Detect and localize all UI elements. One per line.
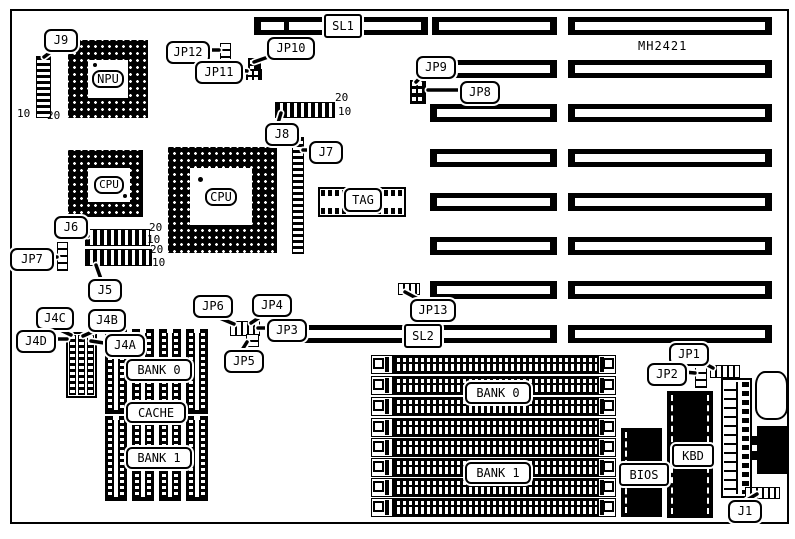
callout-jp2-label: JP2 xyxy=(656,368,678,381)
callout-jp7-label: JP7 xyxy=(21,253,43,266)
callout-j4d-label: J4D xyxy=(25,335,47,348)
callout-j5-label: J5 xyxy=(98,284,112,297)
callout-jp11-label: JP11 xyxy=(205,66,234,79)
callout-j4b-label: J4B xyxy=(96,314,118,327)
callout-jp10-label: JP10 xyxy=(277,42,306,55)
callout-j4a: J4A xyxy=(105,334,145,357)
callout-jp8: JP8 xyxy=(460,81,500,104)
callout-j1: J1 xyxy=(728,500,762,523)
callout-jp4: JP4 xyxy=(252,294,292,317)
callout-j1-label: J1 xyxy=(738,505,752,518)
callout-j6-label: J6 xyxy=(64,221,78,234)
callout-jp11: JP11 xyxy=(195,61,243,84)
callout-j4c: J4C xyxy=(36,307,74,330)
callout-j4c-label: J4C xyxy=(44,312,66,325)
callout-j8: J8 xyxy=(265,123,299,146)
callout-j4b: J4B xyxy=(88,309,126,332)
callout-j7: J7 xyxy=(309,141,343,164)
callout-jp9-label: JP9 xyxy=(425,61,447,74)
callout-j6: J6 xyxy=(54,216,88,239)
pointer-j4a xyxy=(91,341,104,343)
callout-jp4-label: JP4 xyxy=(261,299,283,312)
callout-jp7: JP7 xyxy=(10,248,54,271)
callout-jp6-label: JP6 xyxy=(202,300,224,313)
callout-j4d: J4D xyxy=(16,330,56,353)
motherboard-diagram: SL1 SL2 MH2421 xyxy=(0,0,795,539)
callout-jp3: JP3 xyxy=(267,319,307,342)
callout-jp1-label: JP1 xyxy=(678,348,700,361)
callout-jp3-label: JP3 xyxy=(276,324,298,337)
callout-j7-label: J7 xyxy=(319,146,333,159)
callout-jp10: JP10 xyxy=(267,37,315,60)
callout-j9-label: J9 xyxy=(54,34,68,47)
callout-j4a-label: J4A xyxy=(114,339,136,352)
callout-jp2: JP2 xyxy=(647,363,687,386)
callout-jp13: JP13 xyxy=(410,299,456,322)
callout-j8-label: J8 xyxy=(275,128,289,141)
callout-jp6: JP6 xyxy=(193,295,233,318)
callout-jp8-label: JP8 xyxy=(469,86,491,99)
callout-j9: J9 xyxy=(44,29,78,52)
callout-pointer-lines xyxy=(0,0,795,539)
callout-jp13-label: JP13 xyxy=(419,304,448,317)
callout-jp12-label: JP12 xyxy=(174,46,203,59)
callout-jp9: JP9 xyxy=(416,56,456,79)
callout-jp5-label: JP5 xyxy=(233,355,255,368)
callout-jp5: JP5 xyxy=(224,350,264,373)
callout-j5: J5 xyxy=(88,279,122,302)
